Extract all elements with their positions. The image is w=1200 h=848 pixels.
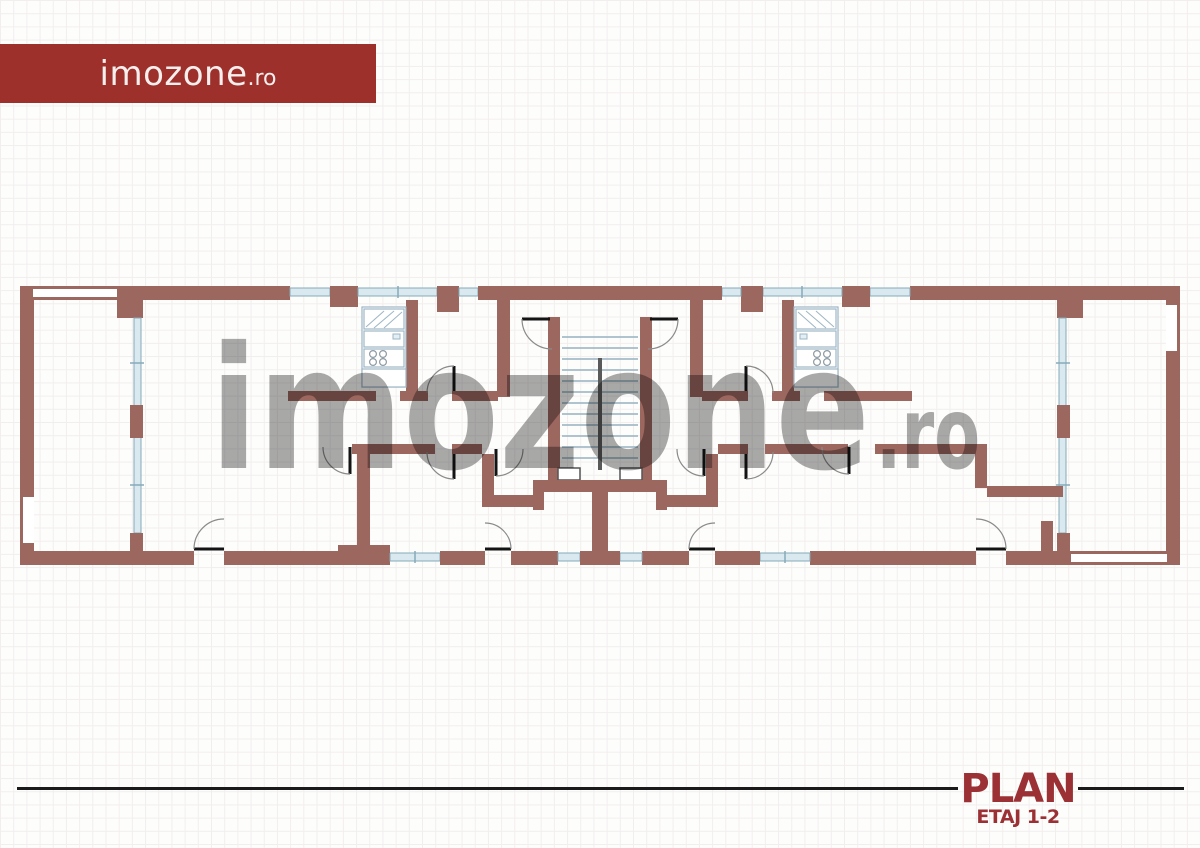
page: imozone .ro imozone.ro PLAN ETAJ 1-2 bbox=[0, 0, 1200, 848]
footer-rule-right bbox=[1078, 787, 1184, 790]
window-bottom-2 bbox=[558, 553, 580, 561]
wall-block bbox=[130, 533, 143, 551]
wall-block bbox=[130, 405, 143, 438]
balcony-niche bbox=[1166, 305, 1177, 351]
watermark-suffix: .ro bbox=[876, 375, 980, 492]
window-top-3 bbox=[459, 288, 478, 296]
logo-banner: imozone.ro bbox=[0, 44, 376, 103]
watermark: imozone .ro bbox=[210, 311, 980, 509]
wall-pier bbox=[437, 286, 459, 312]
watermark-main: imozone bbox=[210, 311, 870, 509]
wall-interior bbox=[987, 486, 1063, 497]
wall-bottom bbox=[140, 551, 194, 565]
floor-plan: imozone .ro bbox=[0, 0, 1200, 848]
door-arc bbox=[194, 519, 224, 549]
wall-balcony-bottom bbox=[20, 551, 140, 565]
wall-block bbox=[130, 300, 143, 318]
door-arc bbox=[485, 523, 511, 549]
footer-rule-left bbox=[17, 787, 958, 790]
wall-bottom bbox=[511, 551, 558, 565]
logo-text-suffix: .ro bbox=[247, 66, 276, 91]
plan-title: PLAN bbox=[958, 769, 1078, 809]
wall-bottom bbox=[440, 551, 485, 565]
plan-subtitle: ETAJ 1-2 bbox=[958, 808, 1078, 827]
wall-pier bbox=[330, 286, 358, 307]
window-top-1 bbox=[290, 288, 330, 296]
balcony-parapet-opening bbox=[1071, 554, 1167, 562]
wall-foot bbox=[338, 545, 390, 553]
logo: imozone.ro bbox=[100, 54, 277, 94]
logo-text-main: imozone bbox=[100, 54, 248, 94]
balcony-niche bbox=[23, 497, 34, 543]
wall-top-center bbox=[478, 286, 600, 300]
wall-stub bbox=[1041, 521, 1053, 551]
balcony-parapet-opening bbox=[33, 289, 117, 297]
wall-bottom bbox=[224, 551, 390, 565]
